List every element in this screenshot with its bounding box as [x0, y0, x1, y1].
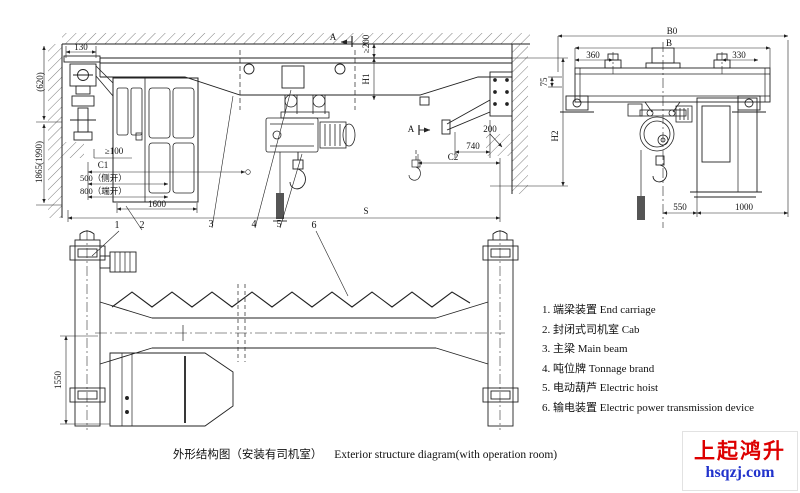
plan-end-carriage-right — [483, 230, 518, 430]
end-view-hook — [653, 156, 667, 182]
electric-hoist — [266, 95, 355, 152]
dim-s-label: S — [357, 206, 375, 216]
hook — [290, 152, 305, 189]
section-a-label-top: A — [326, 32, 340, 42]
door-handle — [136, 133, 142, 140]
dim-620-label: (620) — [35, 62, 45, 102]
collector-bracket — [420, 97, 429, 105]
dim-800-label: 800（端开） — [80, 186, 158, 196]
end-view-hoist — [628, 102, 692, 151]
plan-dimensions — [60, 336, 110, 424]
plan-main-beam — [95, 284, 505, 364]
main-girder — [100, 50, 512, 110]
dim-330-label: 330 — [724, 50, 754, 60]
dim-200-label: 200 — [477, 124, 503, 134]
legend-item-4: 4. 吨位牌 Tonnage brand — [542, 360, 798, 380]
callout-1: 1 — [111, 220, 123, 231]
left-wall-hatch — [48, 44, 62, 218]
dim-740-label: 740 — [456, 141, 490, 151]
dim-500-label: 500（侧开） — [80, 173, 158, 183]
dim-c1-label: C1 — [92, 160, 114, 170]
callout-3: 3 — [205, 219, 217, 230]
legend-item-2: 2. 封闭式司机室 Cab — [542, 321, 798, 341]
caption-chinese: 外形结构图（安装有司机室） — [173, 449, 323, 461]
plan-end-carriage-left — [70, 230, 136, 430]
dim-1550-label: 1550 — [53, 363, 63, 397]
legend-item-1: 1. 端梁装置 End carriage — [542, 301, 798, 321]
logo-domain: hsqzj.com — [706, 464, 775, 482]
dim-h1-label: H1 — [361, 67, 371, 91]
dim-1865-label: 1865(1990) — [34, 127, 44, 197]
dim-c2-label: C2 — [441, 152, 465, 162]
dim-b-label: B — [657, 38, 681, 48]
logo-name: 上起鸿升 — [694, 440, 786, 464]
parts-legend: 1. 端梁装置 End carriage 2. 封闭式司机室 Cab 3. 主梁… — [542, 301, 798, 418]
crane-structure-diagram: 130 (620) 1865(1990) ≥100 C1 500（侧开） 800… — [0, 0, 800, 493]
callout-6: 6 — [308, 220, 320, 231]
callout-2: 2 — [136, 220, 148, 231]
dim-b0-label: B0 — [658, 26, 686, 36]
end-view-cab — [690, 98, 762, 197]
callout-5: 5 — [273, 219, 285, 230]
dim-h2-label: H2 — [550, 124, 560, 148]
end-view — [548, 36, 788, 228]
ceiling-hatch — [62, 33, 530, 44]
logo: 上起鸿升 hsqzj.com — [682, 431, 798, 491]
end-carriage-left — [64, 56, 100, 140]
legend-item-3: 3. 主梁 Main beam — [542, 340, 798, 360]
dim-75-label: 75 — [539, 72, 549, 92]
dim-130-label: 130 — [66, 42, 96, 52]
right-wall-hatch — [512, 44, 528, 194]
dim-1000-label: 1000 — [722, 202, 766, 212]
caption-english: Exterior structure diagram(with operatio… — [334, 449, 557, 461]
tonnage-plate — [282, 66, 304, 88]
end-view-pendant — [637, 150, 645, 220]
dim-1600-label: 1600 — [140, 199, 174, 209]
section-a-label-bottom: A — [404, 124, 418, 134]
plan-view — [60, 230, 518, 430]
corbel-hatch — [62, 142, 84, 158]
dim-550-label: 550 — [662, 202, 698, 212]
drawing-canvas — [0, 0, 800, 493]
dim-360-label: 360 — [578, 50, 608, 60]
legend-item-5: 5. 电动葫芦 Electric hoist — [542, 379, 798, 399]
legend-item-6: 6. 输电装置 Electric power transmission devi… — [542, 399, 798, 419]
plan-cab — [110, 353, 233, 426]
power-cable-zigzag — [112, 292, 470, 307]
drawing-caption: 外形结构图（安装有司机室） Exterior structure diagram… — [125, 446, 605, 462]
callout-4: 4 — [248, 219, 260, 230]
hook-small — [409, 150, 420, 180]
dim-ge200-label: ≥200 — [361, 26, 371, 62]
dim-ge100-label: ≥100 — [97, 146, 131, 156]
